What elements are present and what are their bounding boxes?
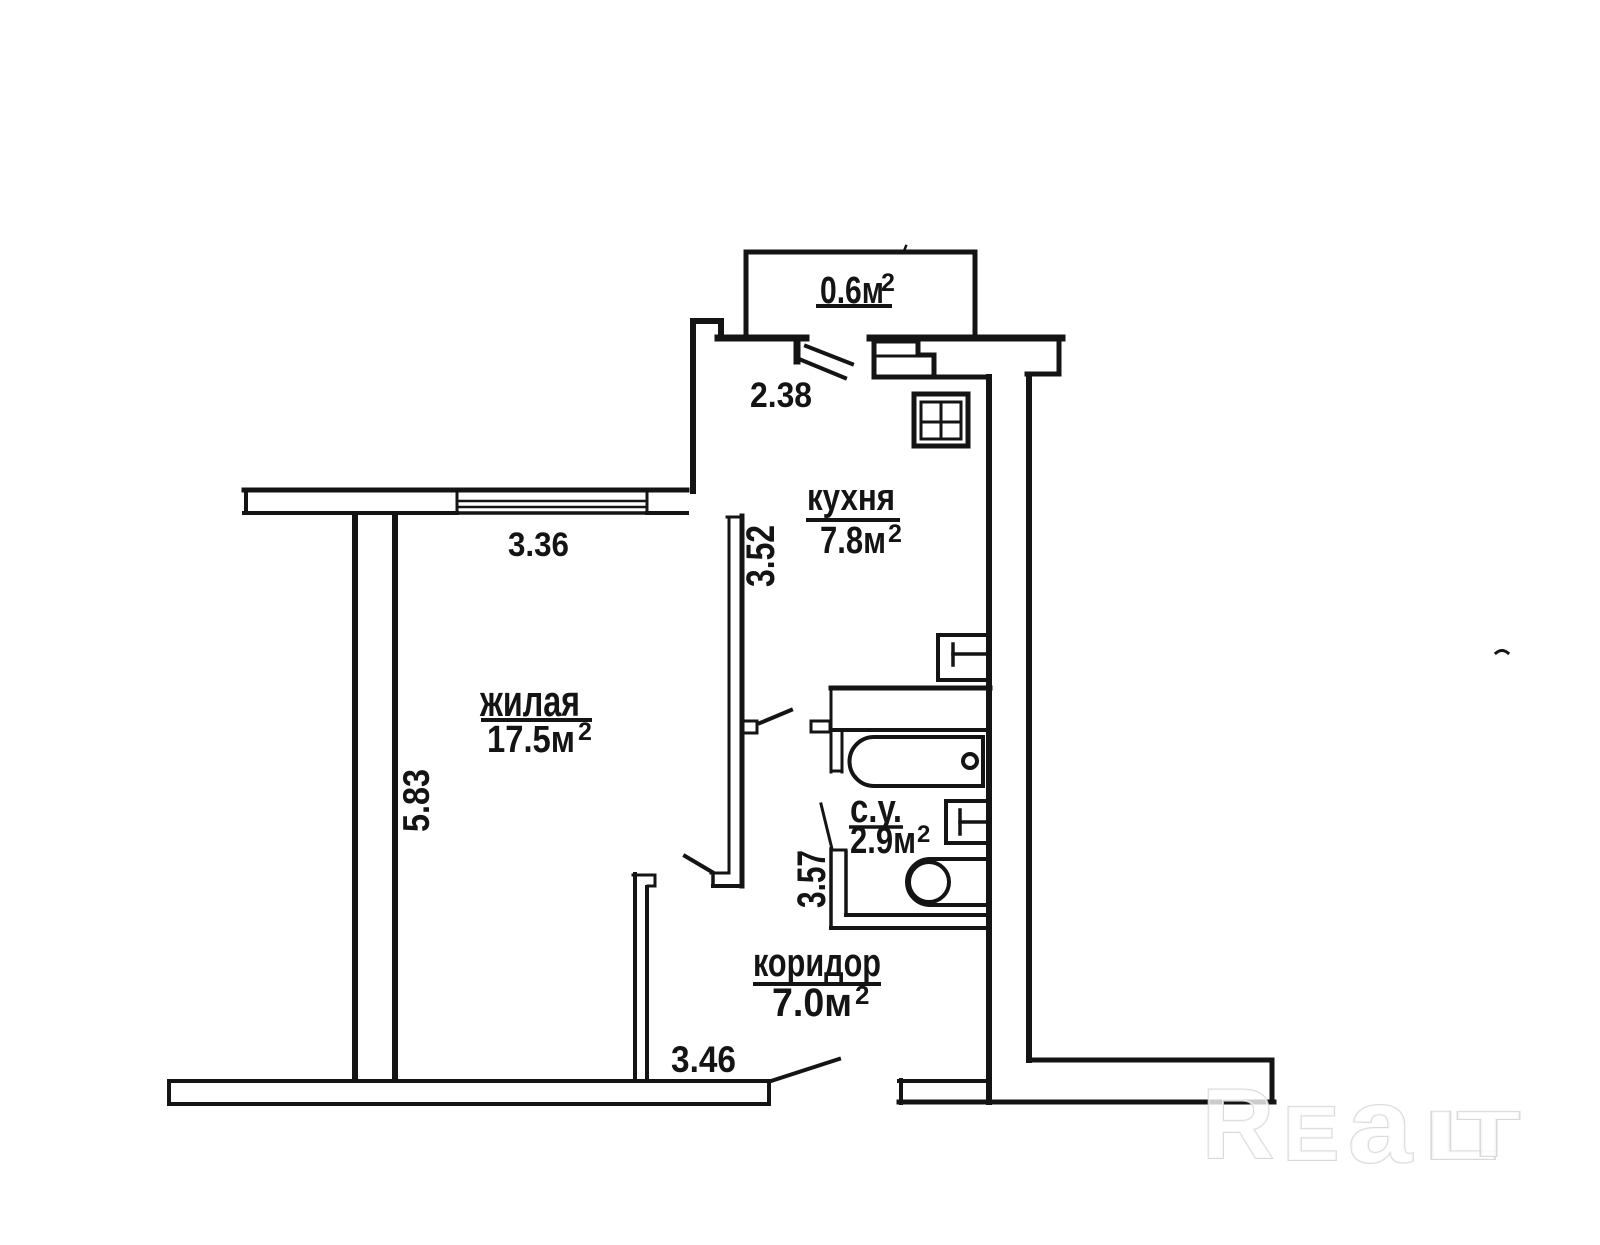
svg-text:E: E	[1283, 1091, 1339, 1177]
svg-text:a: a	[1348, 1067, 1413, 1185]
svg-text:3.36: 3.36	[508, 526, 569, 564]
svg-text:2: 2	[578, 718, 592, 746]
svg-text:коридор: коридор	[753, 941, 881, 985]
svg-text:3.46: 3.46	[671, 1039, 736, 1080]
svg-text:7.0м: 7.0м	[772, 981, 852, 1025]
svg-text:R: R	[1202, 1068, 1274, 1179]
svg-text:2.38: 2.38	[750, 376, 812, 415]
svg-text:2: 2	[917, 821, 930, 848]
svg-text:2: 2	[881, 269, 895, 297]
svg-text:5.83: 5.83	[396, 769, 437, 832]
svg-text:T: T	[1457, 1098, 1520, 1170]
svg-text:17.5м: 17.5м	[487, 719, 575, 761]
svg-text:3.57: 3.57	[790, 850, 834, 908]
svg-text:2: 2	[888, 520, 902, 548]
svg-text:кухня: кухня	[807, 477, 895, 519]
svg-text:7.8м: 7.8м	[820, 520, 886, 562]
svg-text:3.52: 3.52	[739, 525, 783, 587]
